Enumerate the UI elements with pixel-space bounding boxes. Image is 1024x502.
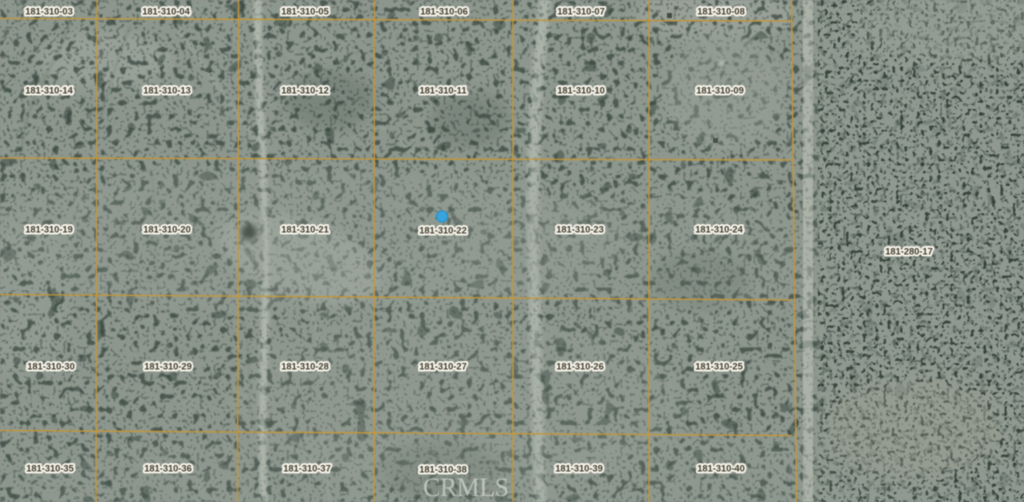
svg-text:181-310-03: 181-310-03 [25, 6, 73, 16]
svg-text:181-310-12: 181-310-12 [281, 85, 329, 95]
svg-text:181-310-19: 181-310-19 [25, 224, 73, 234]
svg-text:181-310-40: 181-310-40 [697, 463, 745, 473]
svg-text:181-310-27: 181-310-27 [419, 361, 467, 371]
svg-text:181-310-24: 181-310-24 [695, 224, 743, 234]
svg-text:181-310-09: 181-310-09 [696, 85, 744, 95]
svg-text:181-310-26: 181-310-26 [556, 361, 604, 371]
svg-text:181-310-10: 181-310-10 [557, 85, 605, 95]
svg-text:181-310-36: 181-310-36 [144, 463, 192, 473]
svg-text:181-310-20: 181-310-20 [143, 224, 191, 234]
svg-text:181-310-25: 181-310-25 [695, 361, 743, 371]
svg-text:181-310-05: 181-310-05 [281, 6, 329, 16]
svg-text:181-310-11: 181-310-11 [419, 85, 466, 95]
svg-text:181-310-22: 181-310-22 [419, 225, 467, 235]
svg-text:181-310-29: 181-310-29 [144, 361, 192, 371]
svg-text:181-310-06: 181-310-06 [420, 6, 468, 16]
svg-text:181-310-28: 181-310-28 [281, 361, 329, 371]
svg-text:181-310-04: 181-310-04 [142, 6, 190, 16]
svg-text:181-310-35: 181-310-35 [26, 463, 74, 473]
svg-text:181-310-13: 181-310-13 [143, 85, 191, 95]
svg-text:181-310-08: 181-310-08 [697, 6, 745, 16]
svg-text:181-310-37: 181-310-37 [283, 463, 331, 473]
svg-text:181-310-07: 181-310-07 [557, 6, 605, 16]
svg-text:181-310-39: 181-310-39 [555, 463, 603, 473]
svg-text:181-280-17: 181-280-17 [885, 246, 933, 256]
svg-text:181-310-21: 181-310-21 [281, 224, 329, 234]
svg-text:181-310-14: 181-310-14 [25, 85, 73, 95]
svg-text:181-310-30: 181-310-30 [27, 361, 75, 371]
svg-text:181-310-23: 181-310-23 [556, 224, 604, 234]
